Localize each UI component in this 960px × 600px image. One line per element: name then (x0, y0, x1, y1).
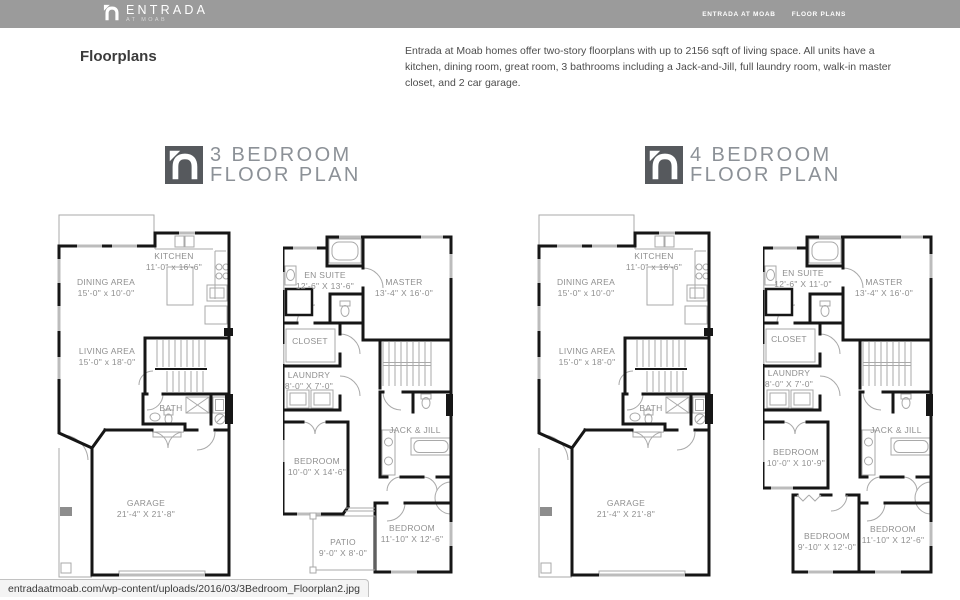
utility-box (60, 507, 72, 516)
utility-box (540, 507, 552, 516)
page-title: Floorplans (80, 48, 157, 65)
fourth-bedroom-variant (763, 422, 931, 572)
intro-paragraph: Entrada at Moab homes offer two-story fl… (405, 43, 911, 91)
wall-posts (926, 394, 933, 416)
floorplan-image-first-floor[interactable]: KITCHEN11'-0" x 16'-6"DINING AREA15'-0" … (57, 211, 237, 579)
fixtures (765, 239, 931, 521)
fridge-icon (207, 285, 227, 301)
patio-outline (313, 516, 375, 570)
nav-link-floor-plans[interactable]: FLOOR PLANS (792, 11, 846, 18)
kitchen-island (167, 267, 193, 305)
plan-3-bedroom: 3 BEDROOM FLOOR PLAN (57, 140, 469, 588)
pantry (205, 306, 227, 324)
plan-title: 3 BEDROOM FLOOR PLAN (210, 145, 361, 185)
first-floor-drawing (57, 211, 237, 579)
fridge-icon (687, 285, 707, 301)
wall-posts (446, 394, 453, 416)
first-floor-drawing (537, 211, 717, 579)
sliding-door (345, 508, 375, 511)
patio-variant (283, 422, 451, 573)
bifold-closet-doors (797, 495, 821, 501)
brand-logo[interactable]: ENTRADA AT MOAB (103, 4, 208, 24)
door-arcs (62, 371, 215, 460)
stove-icon (216, 264, 229, 279)
bathtub-icon (809, 239, 841, 263)
toilet-icon (901, 394, 911, 409)
site-header: ENTRADA AT MOAB ENTRADA AT MOAB FLOOR PL… (0, 0, 960, 28)
closet-shelves (286, 329, 335, 362)
brand-name: ENTRADA (126, 4, 208, 17)
arch-logo-icon (165, 146, 203, 184)
sink-icon (767, 270, 775, 281)
kitchen-island (647, 267, 673, 305)
second-floor-drawing (283, 230, 463, 578)
jack-jill-fixtures (382, 394, 451, 475)
arch-logo-icon (645, 146, 683, 184)
plan-4-bedroom: 4 BEDROOM FLOOR PLAN (537, 140, 949, 588)
stairs-treads (157, 340, 205, 392)
kitchen-sink-icon (175, 236, 194, 247)
second-floor-drawing (763, 230, 943, 578)
fixtures (285, 239, 451, 521)
shower-icon (286, 289, 312, 315)
double-vanity (382, 430, 395, 475)
stove-icon (696, 264, 709, 279)
sink-icon (150, 413, 160, 421)
jack-jill-fixtures (862, 394, 931, 475)
toilet-icon (421, 394, 431, 409)
washer-dryer-icon (767, 390, 813, 408)
plan-title: 4 BEDROOM FLOOR PLAN (690, 145, 841, 185)
bathtub-icon (329, 239, 361, 263)
bathtub-icon (411, 438, 451, 455)
brand-subtitle: AT MOAB (126, 17, 208, 24)
shower-icon (766, 289, 792, 315)
windows-layer (59, 233, 205, 575)
stairs-treads (383, 342, 431, 386)
browser-page: ENTRADA AT MOAB ENTRADA AT MOAB FLOOR PL… (0, 0, 960, 600)
status-url: entradaatmoab.com/wp-content/uploads/201… (8, 583, 360, 595)
walls-layer (59, 233, 229, 575)
toilet-icon (340, 301, 350, 317)
sink-icon (630, 413, 640, 421)
closet-shelves (766, 329, 815, 362)
pantry (685, 306, 707, 324)
windows-layer (539, 233, 685, 575)
double-vanity (862, 430, 875, 475)
arch-logo-icon (103, 4, 121, 22)
door-arcs (542, 371, 695, 460)
plan-heading: 3 BEDROOM FLOOR PLAN (165, 145, 361, 185)
bathtub-icon (891, 438, 931, 455)
door-arc (831, 495, 847, 511)
floorplan-image-second-floor[interactable]: EN SUITE12'-6" X 11'-0"MASTER13'-4" X 16… (763, 230, 943, 578)
nav-link-entrada-at-moab[interactable]: ENTRADA AT MOAB (702, 11, 775, 18)
stairs-treads (637, 340, 685, 392)
kitchen-sink-icon (655, 236, 674, 247)
toilet-icon (820, 301, 830, 317)
status-bar: entradaatmoab.com/wp-content/uploads/201… (0, 579, 369, 597)
walls-layer (283, 237, 451, 572)
plan-heading: 4 BEDROOM FLOOR PLAN (645, 145, 841, 185)
washer-dryer-icon (287, 390, 333, 408)
walls-layer (539, 233, 709, 575)
site-nav: ENTRADA AT MOAB FLOOR PLANS (702, 0, 846, 28)
stairs-treads (863, 342, 911, 386)
floorplan-image-first-floor[interactable]: KITCHEN11'-0" x 16'-6"DINING AREA15'-0" … (537, 211, 717, 579)
walls-layer (763, 237, 931, 572)
floorplan-image-second-floor[interactable]: EN SUITE12'-6" X 13'-6"MASTER13'-4" X 16… (283, 230, 463, 578)
sink-icon (287, 270, 295, 281)
